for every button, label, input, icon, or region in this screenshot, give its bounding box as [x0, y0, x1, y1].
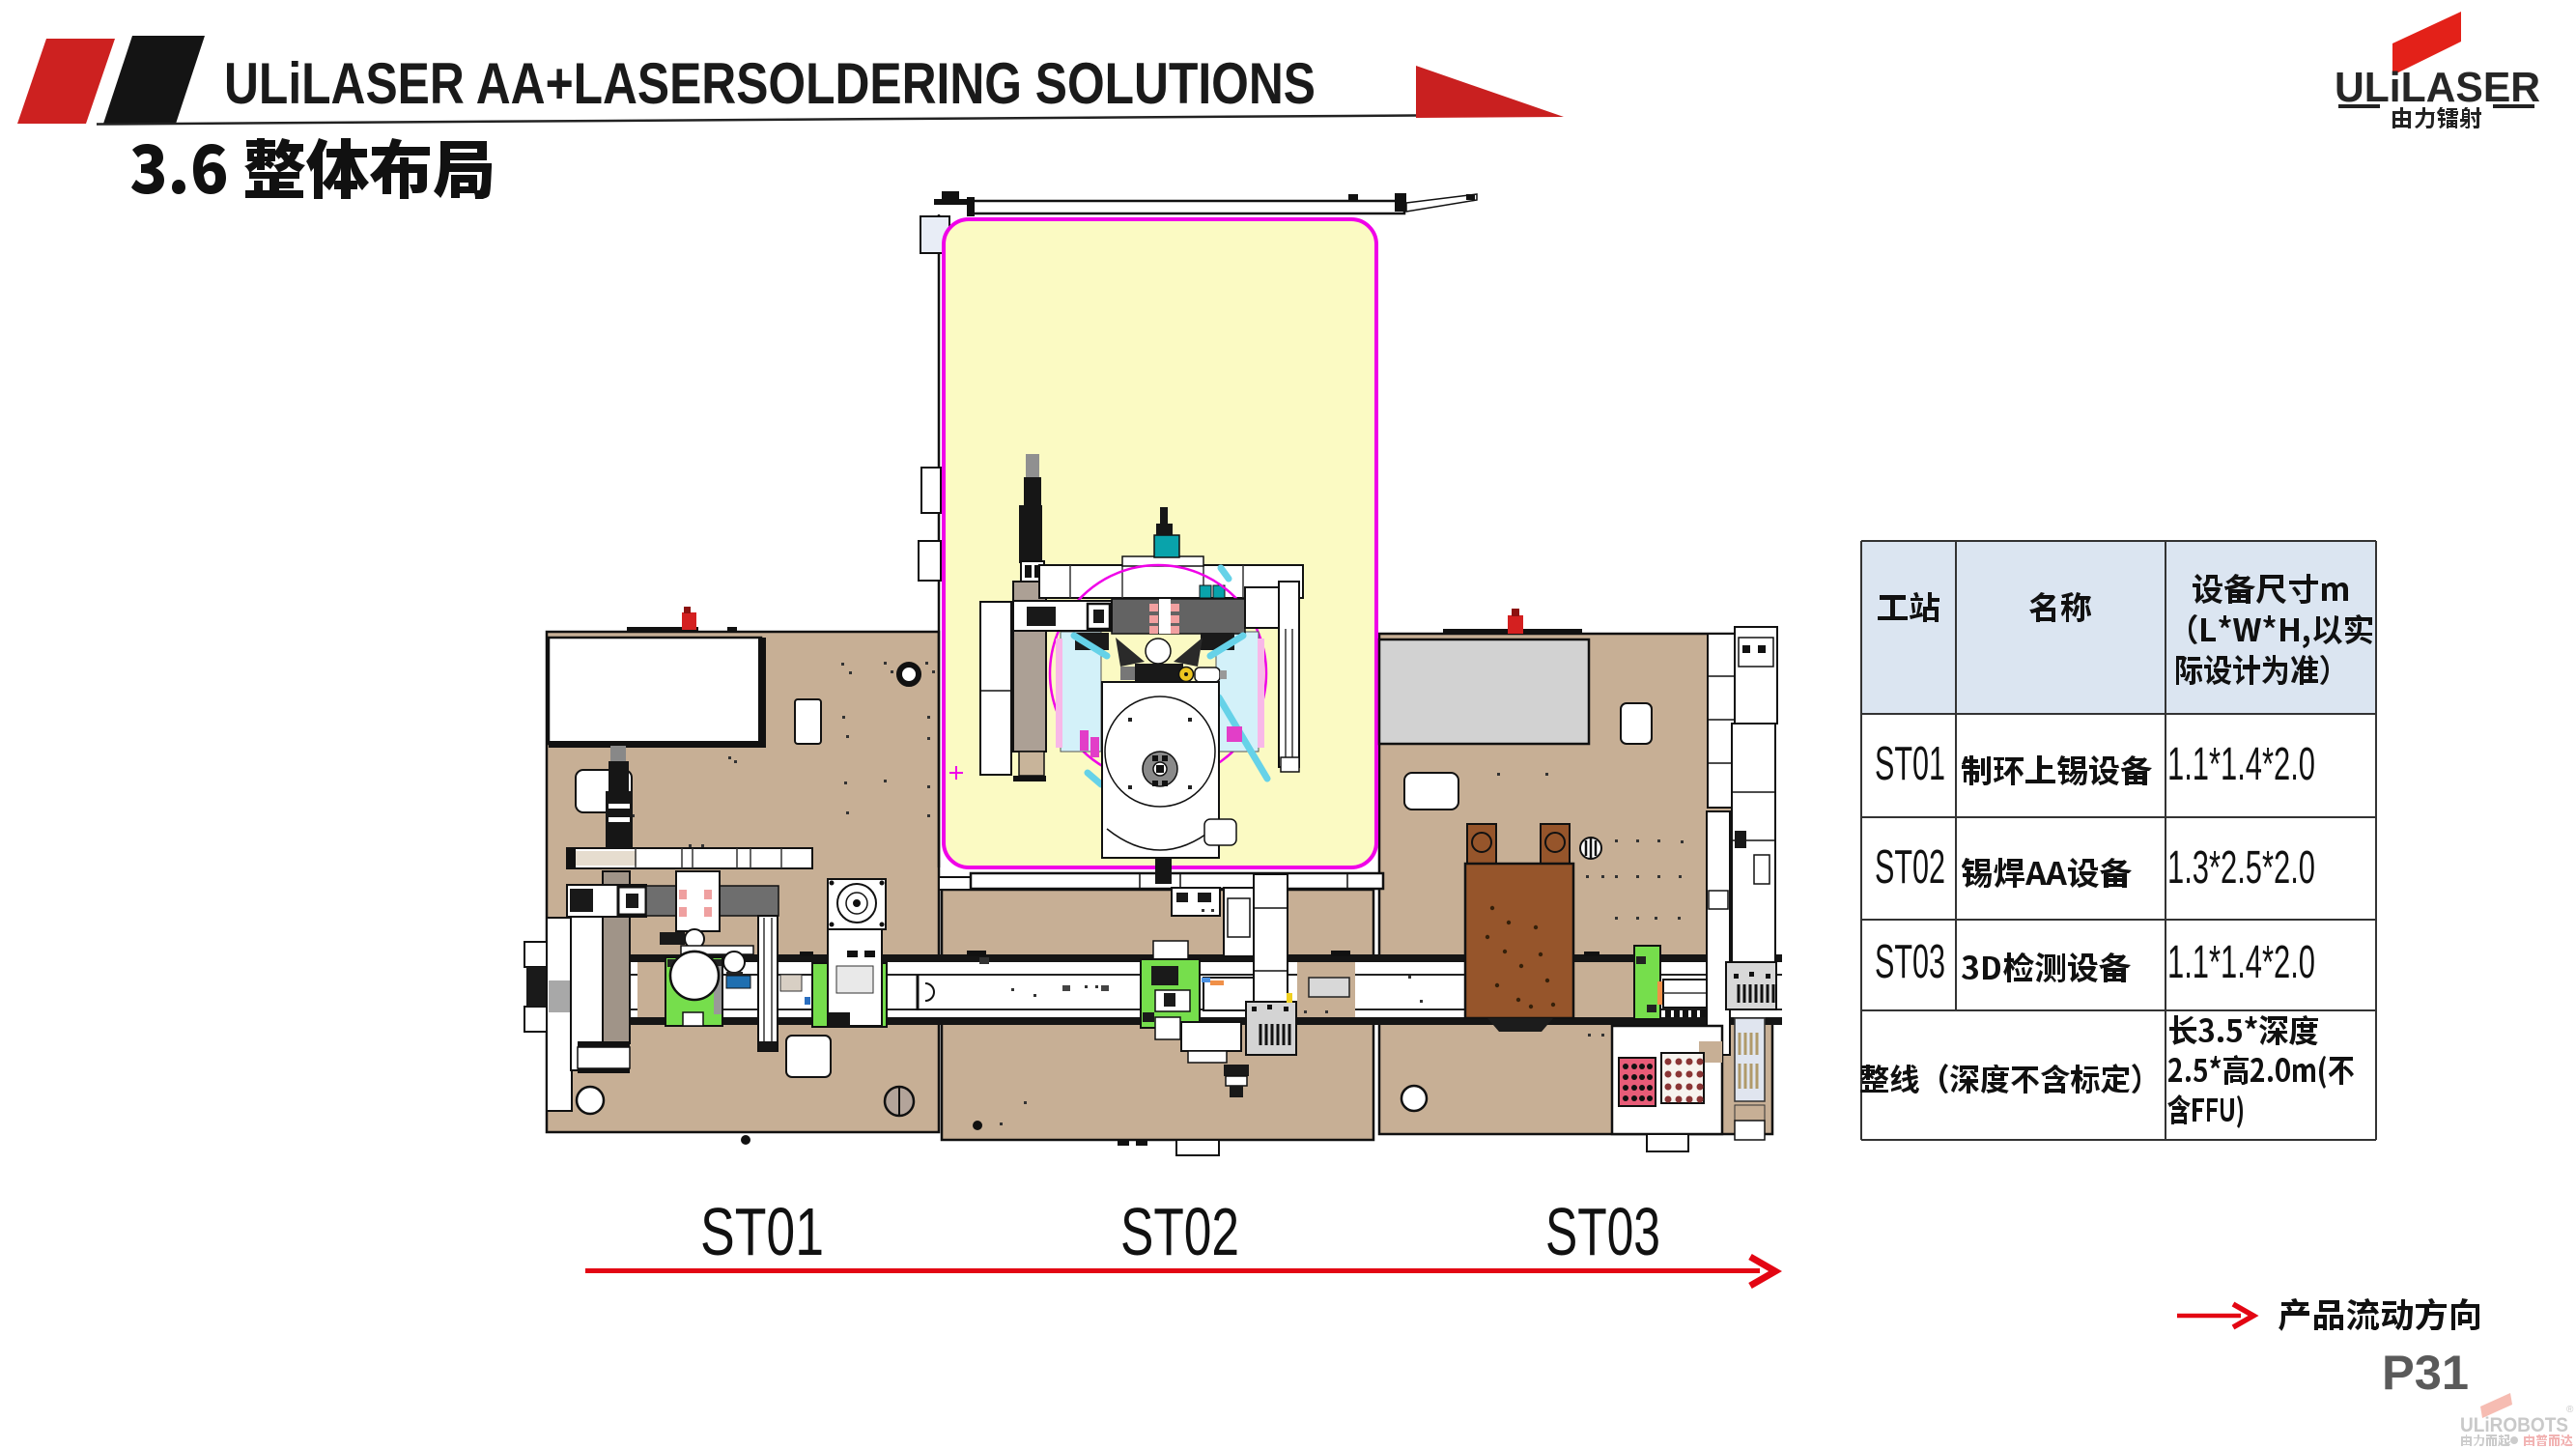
svg-text:ST03: ST03	[1875, 936, 1945, 988]
svg-text:®: ®	[2566, 1405, 2574, 1415]
svg-text:ST02: ST02	[1875, 841, 1945, 894]
svg-text:ST01: ST01	[700, 1194, 824, 1269]
svg-text:P31: P31	[2382, 1346, 2469, 1400]
svg-text:ULiLASER: ULiLASER	[2335, 64, 2540, 111]
svg-text:1.3*2.5*2.0: 1.3*2.5*2.0	[2167, 842, 2315, 894]
svg-text:ULiLASER AA+LASERSOLDERING SOL: ULiLASER AA+LASERSOLDERING SOLUTIONS	[224, 51, 1316, 116]
svg-text:ST01: ST01	[1875, 738, 1945, 790]
svg-text:ST03: ST03	[1545, 1194, 1660, 1269]
svg-text:1.1*1.4*2.0: 1.1*1.4*2.0	[2167, 937, 2315, 988]
svg-text:1.1*1.4*2.0: 1.1*1.4*2.0	[2167, 739, 2315, 790]
svg-text:ST02: ST02	[1120, 1194, 1239, 1269]
svg-text:ULiROBOTS: ULiROBOTS	[2460, 1414, 2568, 1436]
